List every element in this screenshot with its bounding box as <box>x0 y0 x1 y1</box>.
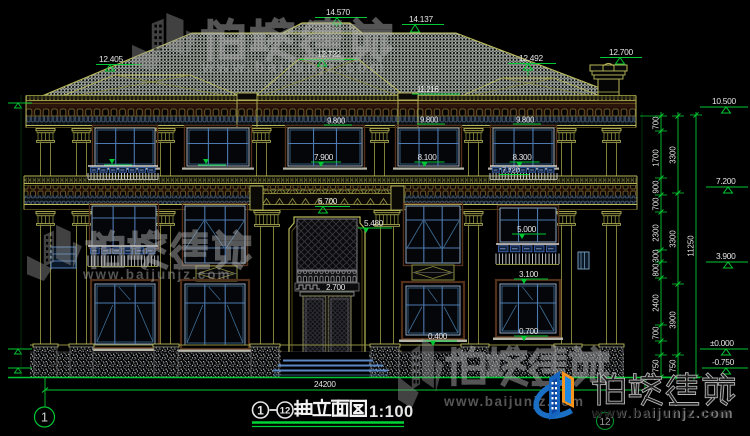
svg-text:14.137: 14.137 <box>409 14 433 24</box>
svg-text:3.900: 3.900 <box>716 251 736 261</box>
svg-text:1: 1 <box>257 404 264 418</box>
svg-text:1700: 1700 <box>652 149 661 167</box>
svg-text:7.900: 7.900 <box>314 153 334 162</box>
svg-text:11250: 11250 <box>687 235 696 257</box>
svg-text:-0.750: -0.750 <box>712 357 735 367</box>
svg-text:24200: 24200 <box>314 380 336 389</box>
svg-text:3300: 3300 <box>669 146 678 164</box>
svg-text:±0.000: ±0.000 <box>710 338 734 348</box>
svg-text:300: 300 <box>652 249 661 263</box>
svg-text:9.800: 9.800 <box>327 117 346 126</box>
svg-text:www.baijunjz.com: www.baijunjz.com <box>591 406 731 421</box>
svg-text:12.405: 12.405 <box>99 54 123 64</box>
svg-text:700: 700 <box>652 197 661 211</box>
svg-text:11.216: 11.216 <box>417 85 438 94</box>
svg-text:7.200: 7.200 <box>716 176 736 186</box>
svg-text:3.100: 3.100 <box>519 270 539 279</box>
svg-text:2400: 2400 <box>652 294 661 312</box>
svg-text:2300: 2300 <box>652 224 661 242</box>
svg-text:10.500: 10.500 <box>712 96 736 106</box>
svg-text:900: 900 <box>652 180 661 194</box>
svg-text:5.000: 5.000 <box>517 225 537 234</box>
svg-text:7.720: 7.720 <box>502 166 520 175</box>
svg-text:12: 12 <box>280 406 291 417</box>
svg-text:800: 800 <box>652 263 661 277</box>
svg-text:2.700: 2.700 <box>326 283 346 292</box>
svg-text:700: 700 <box>652 116 661 130</box>
svg-text:6.700: 6.700 <box>318 197 338 206</box>
svg-text:14.570: 14.570 <box>326 7 350 17</box>
svg-text:5.480: 5.480 <box>364 219 384 228</box>
svg-text:8.300: 8.300 <box>513 153 533 162</box>
svg-text:1: 1 <box>41 410 48 425</box>
svg-text:3900: 3900 <box>669 311 678 329</box>
svg-text:8.100: 8.100 <box>418 153 438 162</box>
svg-text:12.492: 12.492 <box>519 53 543 63</box>
svg-text:9.800: 9.800 <box>420 116 439 125</box>
svg-text:12.700: 12.700 <box>609 47 633 57</box>
svg-text:9.800: 9.800 <box>516 116 535 125</box>
svg-text:1:100: 1:100 <box>369 403 414 421</box>
svg-text:750: 750 <box>669 359 678 373</box>
svg-text:3300: 3300 <box>669 230 678 248</box>
svg-text:0.400: 0.400 <box>428 332 448 341</box>
svg-text:0.700: 0.700 <box>519 327 539 336</box>
svg-text:www.baijunjz.com: www.baijunjz.com <box>82 267 232 282</box>
svg-text:750: 750 <box>652 359 661 373</box>
svg-text:700: 700 <box>652 326 661 340</box>
svg-text:www.baijunjz.com: www.baijunjz.com <box>201 59 387 76</box>
